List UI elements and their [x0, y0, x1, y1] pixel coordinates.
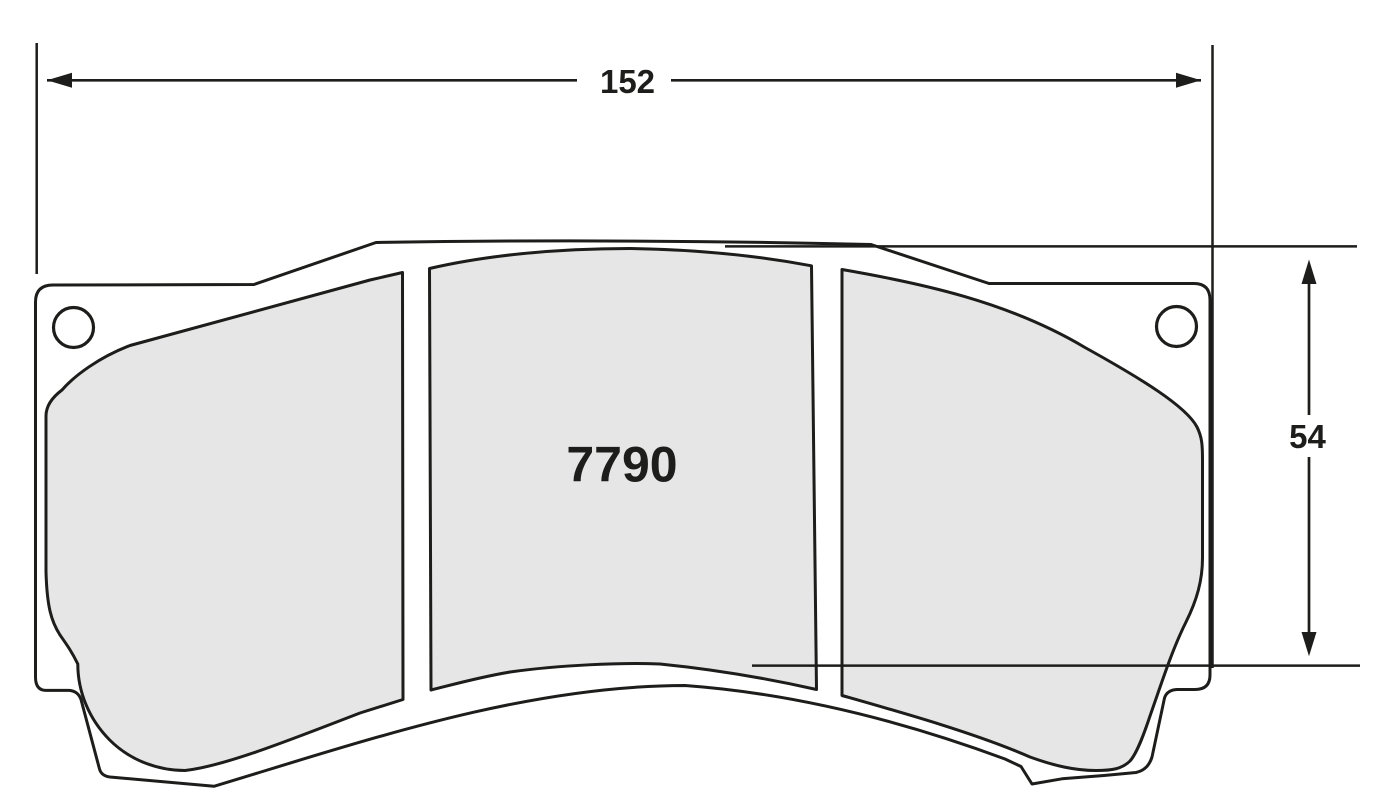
- svg-text:54: 54: [1289, 418, 1326, 455]
- svg-text:152: 152: [600, 63, 655, 100]
- svg-text:7790: 7790: [566, 437, 677, 493]
